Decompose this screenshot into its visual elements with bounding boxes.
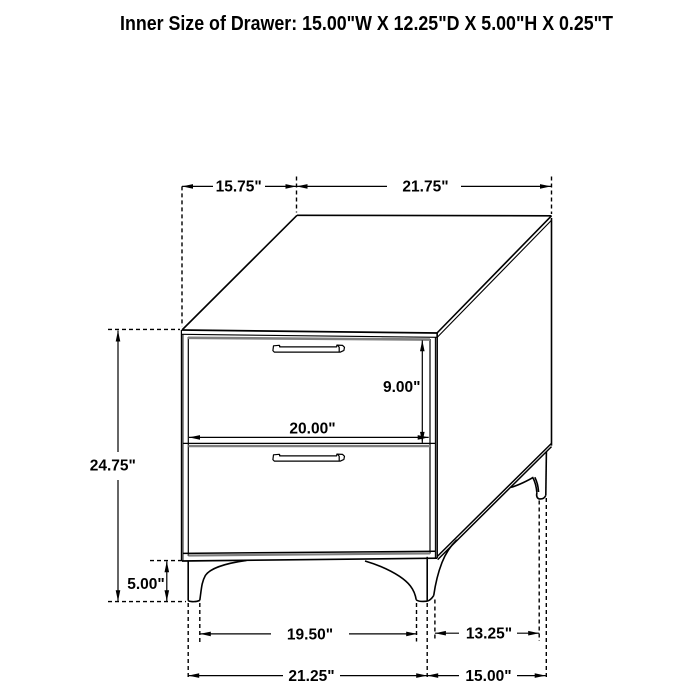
svg-text:Inner Size of Drawer: 15.00"W: Inner Size of Drawer: 15.00"W X 12.25"D … (120, 13, 613, 35)
svg-text:20.00": 20.00" (289, 420, 335, 437)
svg-text:13.25": 13.25" (466, 626, 512, 643)
svg-text:5.00": 5.00" (127, 576, 165, 593)
svg-text:15.00": 15.00" (465, 668, 511, 685)
svg-text:15.75": 15.75" (216, 178, 262, 195)
svg-text:19.50": 19.50" (287, 626, 333, 643)
svg-text:21.75": 21.75" (402, 178, 448, 195)
svg-text:21.25": 21.25" (288, 668, 334, 685)
svg-text:24.75": 24.75" (90, 458, 136, 475)
svg-text:9.00": 9.00" (383, 379, 421, 396)
